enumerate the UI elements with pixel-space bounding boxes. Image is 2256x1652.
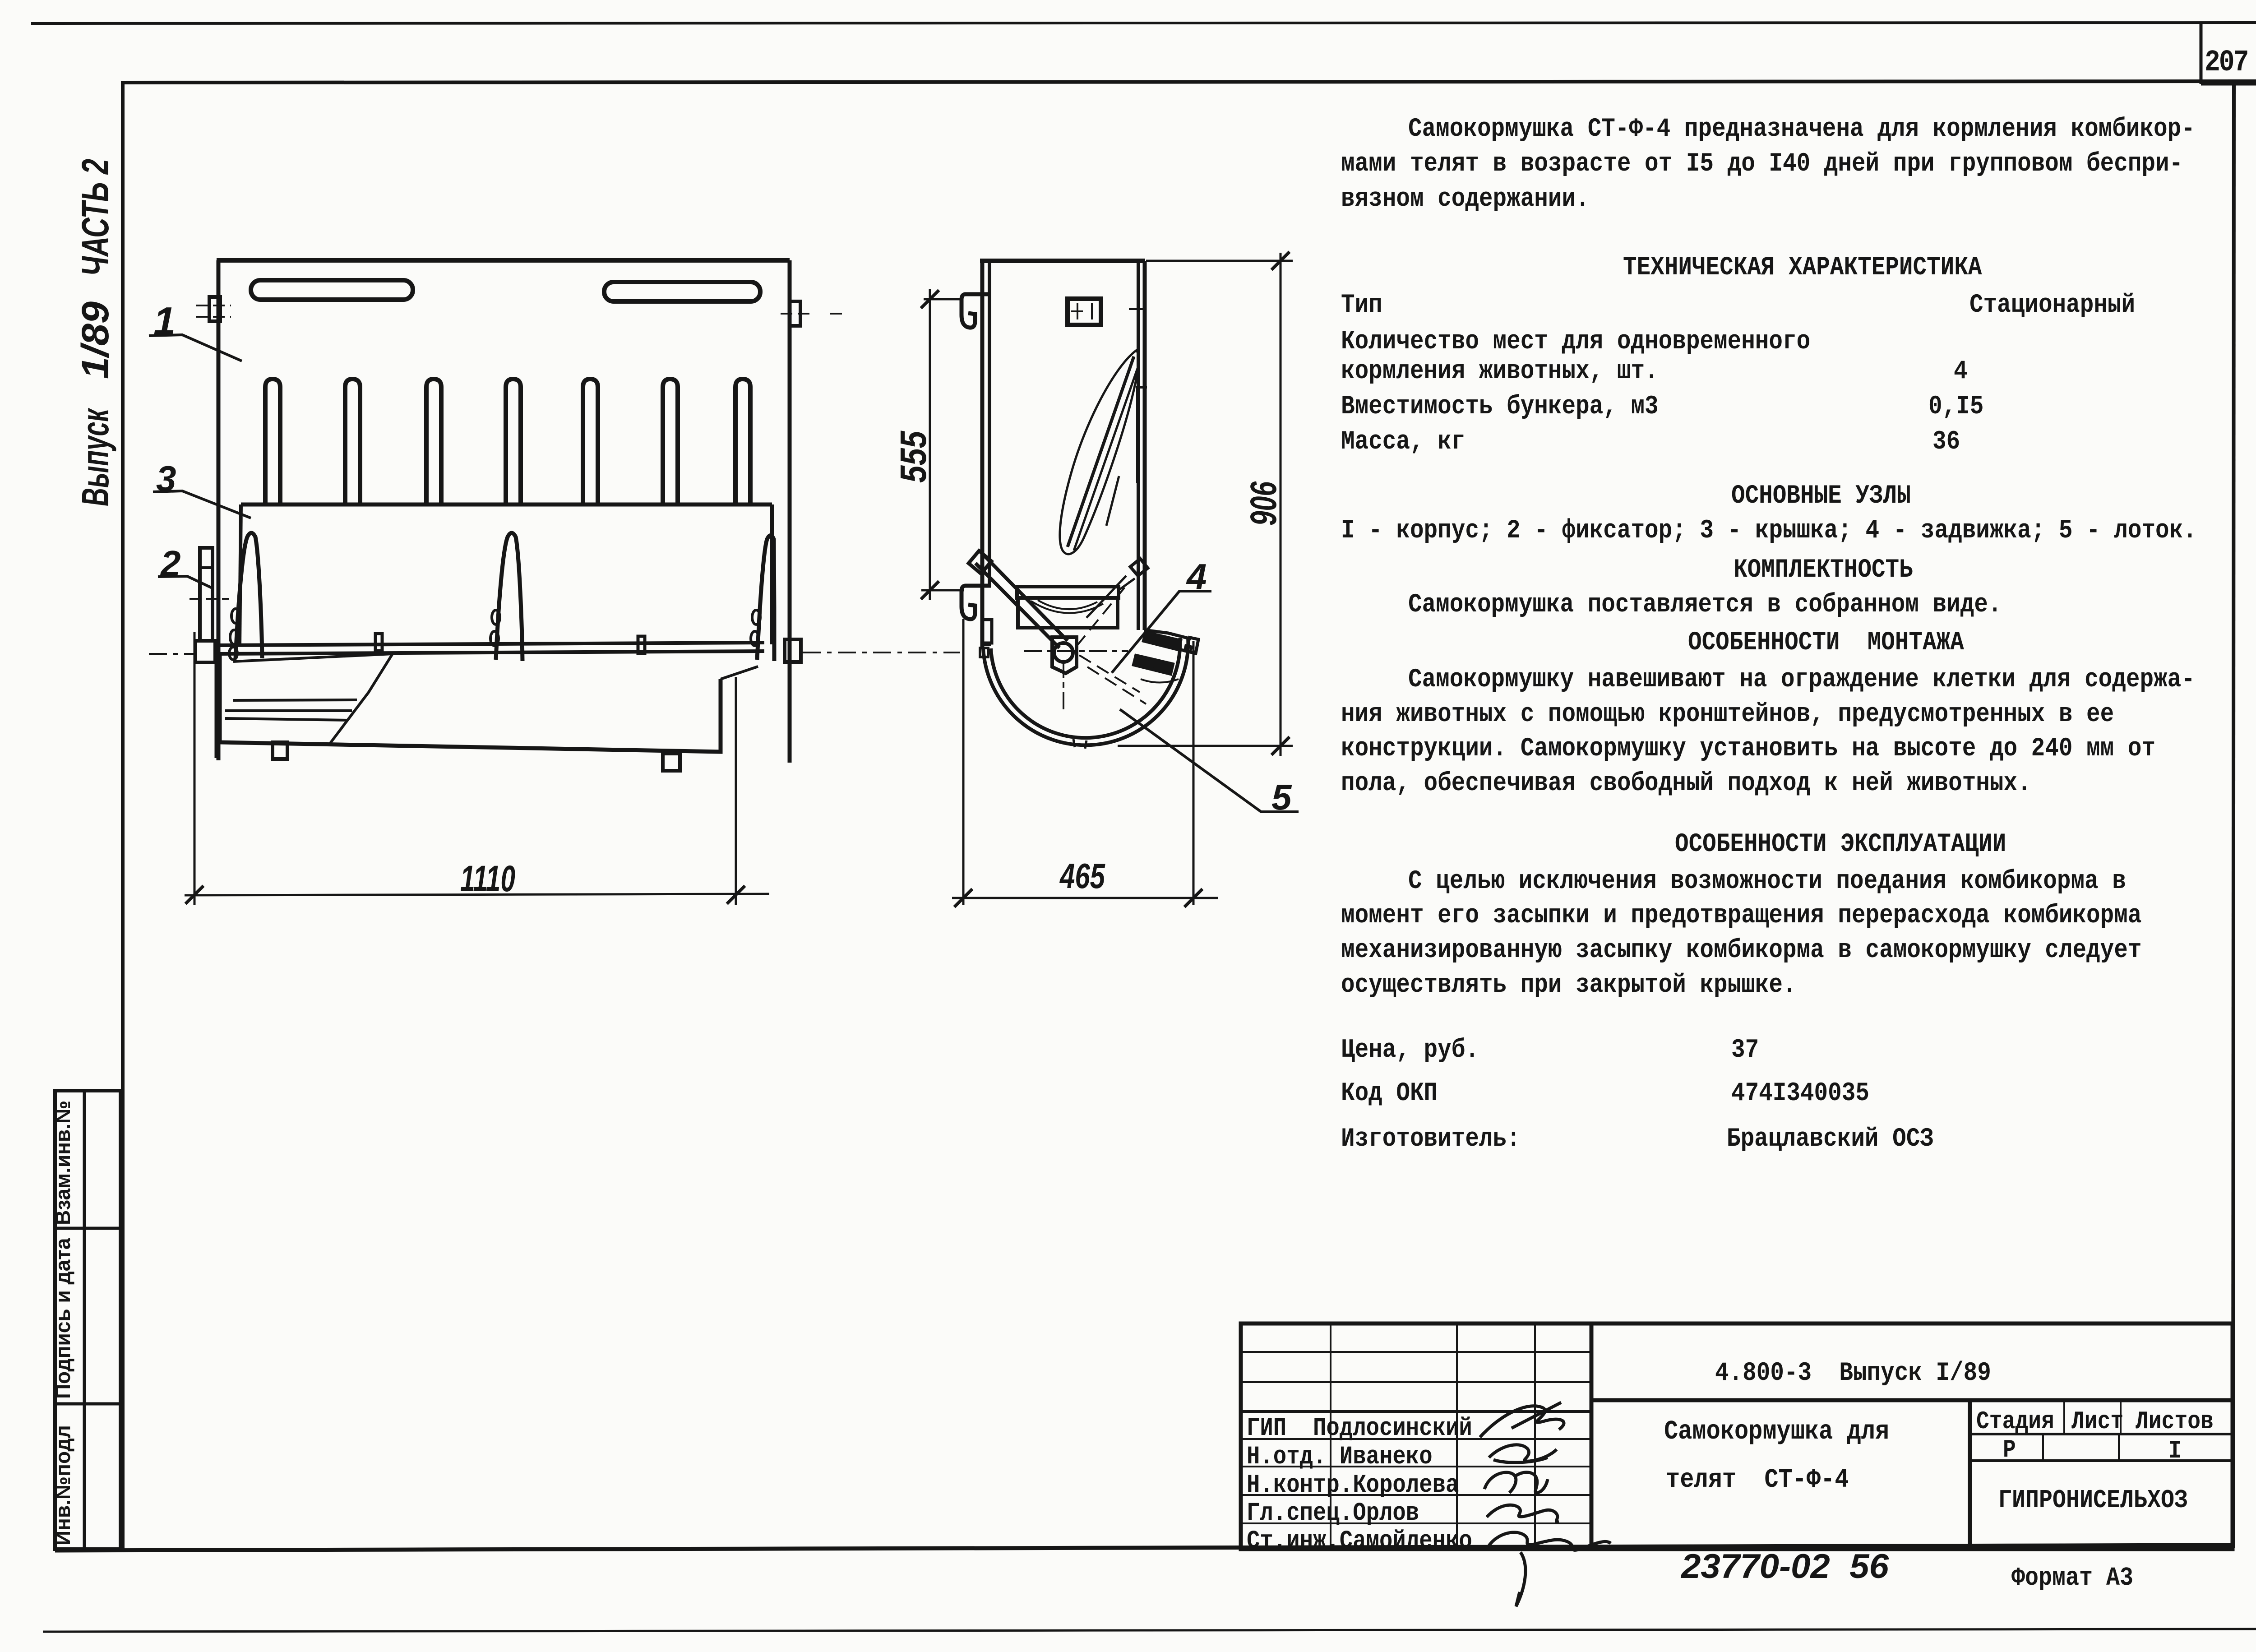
svg-text:1/89: 1/89: [74, 301, 116, 379]
svg-text:36: 36: [1932, 426, 1960, 457]
svg-text:1110: 1110: [460, 858, 515, 899]
svg-text:КОМПЛЕКТНОСТЬ: КОМПЛЕКТНОСТЬ: [1734, 555, 1913, 585]
svg-text:I - корпус; 2 - фиксатор; 3 -: I - корпус; 2 - фиксатор; 3 - крышка; 4 …: [1341, 515, 2197, 546]
svg-text:Подпись и дата: Подпись и дата: [51, 1238, 74, 1399]
svg-text:0,I5: 0,I5: [1928, 391, 1983, 421]
svg-text:мами телят в возрасте от I5 до: мами телят в возрасте от I5 до I40 дней …: [1341, 148, 2183, 179]
svg-text:Гл.спец.Орлов: Гл.спец.Орлов: [1247, 1499, 1419, 1527]
svg-text:ТЕХНИЧЕСКАЯ ХАРАКТЕРИСТИКА: ТЕХНИЧЕСКАЯ ХАРАКТЕРИСТИКА: [1623, 252, 1982, 282]
svg-text:ОСОБЕННОСТИ МОНТАЖА: ОСОБЕННОСТИ МОНТАЖА: [1688, 627, 1964, 657]
svg-text:ОСОБЕННОСТИ ЭКСПЛУАТАЦИИ: ОСОБЕННОСТИ ЭКСПЛУАТАЦИИ: [1675, 829, 2006, 859]
svg-text:ГИП Подлосинский: ГИП Подлосинский: [1247, 1414, 1472, 1443]
svg-text:23770-02 56: 23770-02 56: [1680, 1547, 1889, 1586]
svg-text:Листов: Листов: [2136, 1407, 2214, 1436]
svg-text:Самокормушка СТ-Ф-4 предназнач: Самокормушка СТ-Ф-4 предназначена для ко…: [1408, 114, 2195, 144]
svg-text:конструкции. Самокормушку уста: конструкции. Самокормушку установить на …: [1341, 733, 2155, 764]
svg-text:Лист: Лист: [2071, 1407, 2123, 1436]
svg-text:207: 207: [2205, 46, 2247, 80]
svg-text:Взам.инв.№: Взам.инв.№: [51, 1101, 74, 1225]
svg-text:Код ОКП: Код ОКП: [1341, 1078, 1438, 1108]
svg-text:I: I: [2168, 1437, 2182, 1465]
svg-text:465: 465: [1059, 856, 1105, 896]
svg-text:Ст.инж.Самойленко: Ст.инж.Самойленко: [1247, 1527, 1472, 1555]
svg-text:Самокормушка для: Самокормушка для: [1664, 1416, 1889, 1447]
svg-text:Брацлавский ОСЗ: Брацлавский ОСЗ: [1727, 1124, 1934, 1154]
svg-text:ЧАСТЬ 2: ЧАСТЬ 2: [74, 159, 116, 276]
svg-text:555: 555: [893, 430, 934, 483]
svg-text:Количество мест для одновремен: Количество мест для одновременного: [1341, 326, 1810, 356]
svg-text:4: 4: [1954, 356, 1968, 386]
svg-text:Выпуск: Выпуск: [74, 408, 116, 506]
svg-text:вязном содержании.: вязном содержании.: [1341, 184, 1590, 214]
svg-text:Н.контр.Королева: Н.контр.Королева: [1247, 1471, 1459, 1499]
svg-text:Самокормушка поставляется в со: Самокормушка поставляется в собранном ви…: [1408, 589, 2002, 620]
svg-text:Самокормушку навешивают на огр: Самокормушку навешивают на ограждение кл…: [1408, 664, 2195, 694]
svg-text:ОСНОВНЫЕ УЗЛЫ: ОСНОВНЫЕ УЗЛЫ: [1731, 481, 1911, 511]
svg-text:Инв.№подл: Инв.№подл: [51, 1425, 74, 1546]
svg-text:906: 906: [1243, 481, 1284, 526]
svg-text:Н.отд. Иванеко: Н.отд. Иванеко: [1247, 1442, 1433, 1471]
svg-text:Масса, кг: Масса, кг: [1341, 426, 1465, 457]
svg-text:Формат А3: Формат А3: [2011, 1564, 2133, 1593]
svg-text:осуществлять при закрытой крыш: осуществлять при закрытой крышке.: [1341, 970, 1797, 1000]
svg-text:С целью исключения возможности: С целью исключения возможности поедания …: [1408, 866, 2126, 896]
svg-text:4.800-3 Выпуск I/89: 4.800-3 Выпуск I/89: [1715, 1358, 1991, 1388]
svg-text:ния животных с помощью кронште: ния животных с помощью кронштейнов, пред…: [1341, 699, 2114, 729]
svg-text:кормления животных, шт.: кормления животных, шт.: [1341, 356, 1659, 386]
svg-text:пола, обеспечивая свободный по: пола, обеспечивая свободный подход к ней…: [1341, 768, 2031, 798]
svg-text:механизированную засыпку комби: механизированную засыпку комбикорма в са…: [1341, 935, 2141, 965]
svg-text:Тип: Тип: [1341, 290, 1382, 320]
svg-text:Цена, руб.: Цена, руб.: [1341, 1035, 1479, 1065]
svg-text:Стадия: Стадия: [1976, 1407, 2054, 1436]
svg-text:474I340035: 474I340035: [1731, 1078, 1869, 1108]
svg-text:момент его засыпки и предотвра: момент его засыпки и предотвращения пере…: [1341, 900, 2141, 930]
svg-text:Вместимость бункера, м3: Вместимость бункера, м3: [1341, 391, 1659, 421]
svg-text:Изготовитель:: Изготовитель:: [1341, 1124, 1521, 1154]
svg-text:телят СТ-Ф-4: телят СТ-Ф-4: [1666, 1464, 1849, 1495]
svg-text:37: 37: [1731, 1035, 1759, 1065]
svg-text:Р: Р: [2003, 1436, 2016, 1464]
svg-text:ГИПРОНИСЕЛЬХОЗ: ГИПРОНИСЕЛЬХОЗ: [1998, 1486, 2188, 1515]
svg-text:Стационарный: Стационарный: [1969, 290, 2135, 320]
